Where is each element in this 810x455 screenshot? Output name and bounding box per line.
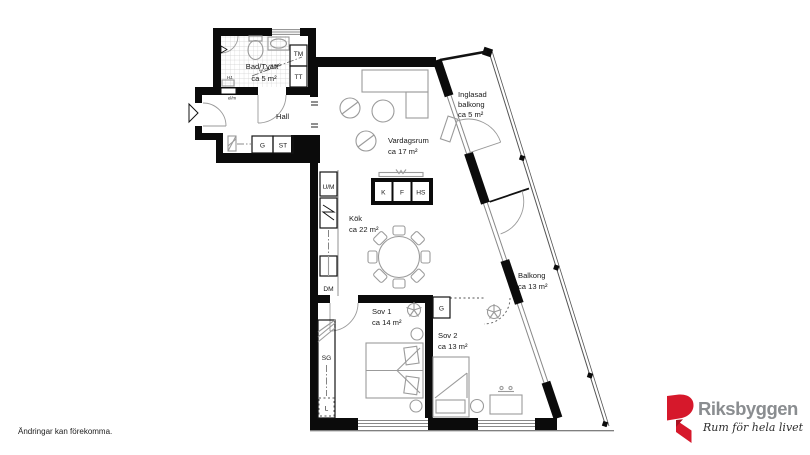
room-label-sov1: Sov 1 <box>372 307 391 316</box>
glazed-balcony-top-wall <box>440 52 487 61</box>
label-g-sov2: G <box>439 306 444 313</box>
cooktop-box <box>320 198 337 228</box>
wardrobe-strip <box>318 320 335 418</box>
room-area-bad: ca 5 m² <box>251 74 277 83</box>
bathroom-window <box>272 28 300 36</box>
room-label-inglasad-2: balkong <box>458 100 485 109</box>
electrical-cabinet <box>221 88 236 94</box>
cooktop-icon <box>323 205 334 220</box>
room-area-inglasad: ca 5 m² <box>458 110 484 119</box>
sov1-furniture <box>318 302 423 418</box>
armchair <box>356 131 376 151</box>
sov2-future-opening <box>450 298 510 324</box>
single-bed <box>433 357 469 417</box>
room-area-kok: ca 22 m² <box>349 225 379 234</box>
sov1-door <box>330 303 358 331</box>
room-area-sov2: ca 13 m² <box>438 342 468 351</box>
room-label-kok: Kök <box>349 214 362 223</box>
label-hj: HJ. <box>227 75 233 80</box>
hall-opening-marks <box>311 102 318 127</box>
desk-chair-icon <box>487 304 502 319</box>
brand-name: Riksbyggen <box>698 398 798 419</box>
double-bed <box>366 343 423 398</box>
riksbyggen-logo: Riksbyggen Rum för hela livet <box>667 394 804 443</box>
floorplan-page: Bad/Tvätt ca 5 m² HJ. fri ca 2,3m TM TT … <box>0 0 810 455</box>
room-area-vardagsrum: ca 17 m² <box>388 147 418 156</box>
label-f: F <box>400 190 404 197</box>
coat-hooks-icon <box>228 136 251 151</box>
balcony-railing <box>492 51 609 426</box>
entrance-arrow-icon <box>189 104 198 122</box>
label-k: K <box>381 190 386 197</box>
room-area-balkong: ca 13 m² <box>518 282 548 291</box>
label-g-hall: G <box>260 143 265 150</box>
room-label-sov2: Sov 2 <box>438 331 457 340</box>
sov2-furniture <box>433 297 522 417</box>
sofa <box>362 70 428 92</box>
desk-chair-icon <box>407 302 422 317</box>
armchair <box>340 98 360 118</box>
cabinet-island <box>371 170 433 206</box>
floorplan-drawing: Bad/Tvätt ca 5 m² HJ. fri ca 2,3m TM TT … <box>0 0 810 455</box>
label-tm: TM <box>294 51 304 58</box>
disclaimer-text: Ändringar kan förekomma. <box>18 427 112 436</box>
label-dm: DM <box>323 286 333 293</box>
toilet-icon <box>248 41 263 60</box>
bedside-table <box>411 328 423 340</box>
sofa-chaise <box>406 92 428 118</box>
room-label-inglasad-1: Inglasad <box>458 90 487 99</box>
desk-set <box>490 386 522 414</box>
brand-tagline: Rum för hela livet <box>702 421 804 434</box>
room-label-vardagsrum: Vardagsrum <box>388 136 429 145</box>
room-area-sov1: ca 14 m² <box>372 318 402 327</box>
label-hs: HS <box>416 190 426 197</box>
sideboard <box>440 116 457 142</box>
room-label-hall: Hall <box>276 112 289 121</box>
dining-set <box>368 226 430 288</box>
label-tt: TT <box>294 74 302 81</box>
sov1-window <box>358 418 428 430</box>
coffee-table <box>372 100 394 122</box>
label-st: ST <box>279 143 287 150</box>
balcony-railing <box>489 52 606 427</box>
label-l: L <box>325 406 329 413</box>
sov2-window <box>478 418 535 430</box>
bedside-table <box>410 400 422 412</box>
room-label-balkong: Balkong <box>518 271 545 280</box>
label-elm: el/m <box>228 96 237 101</box>
desk <box>490 395 522 414</box>
riksbyggen-logo-icon <box>667 394 694 443</box>
label-um: U/M <box>322 184 334 191</box>
entrance-door <box>189 103 226 126</box>
bedside-table <box>471 400 484 413</box>
dining-table <box>379 237 420 278</box>
island-counter <box>379 173 423 177</box>
label-sg: SG <box>322 355 332 362</box>
